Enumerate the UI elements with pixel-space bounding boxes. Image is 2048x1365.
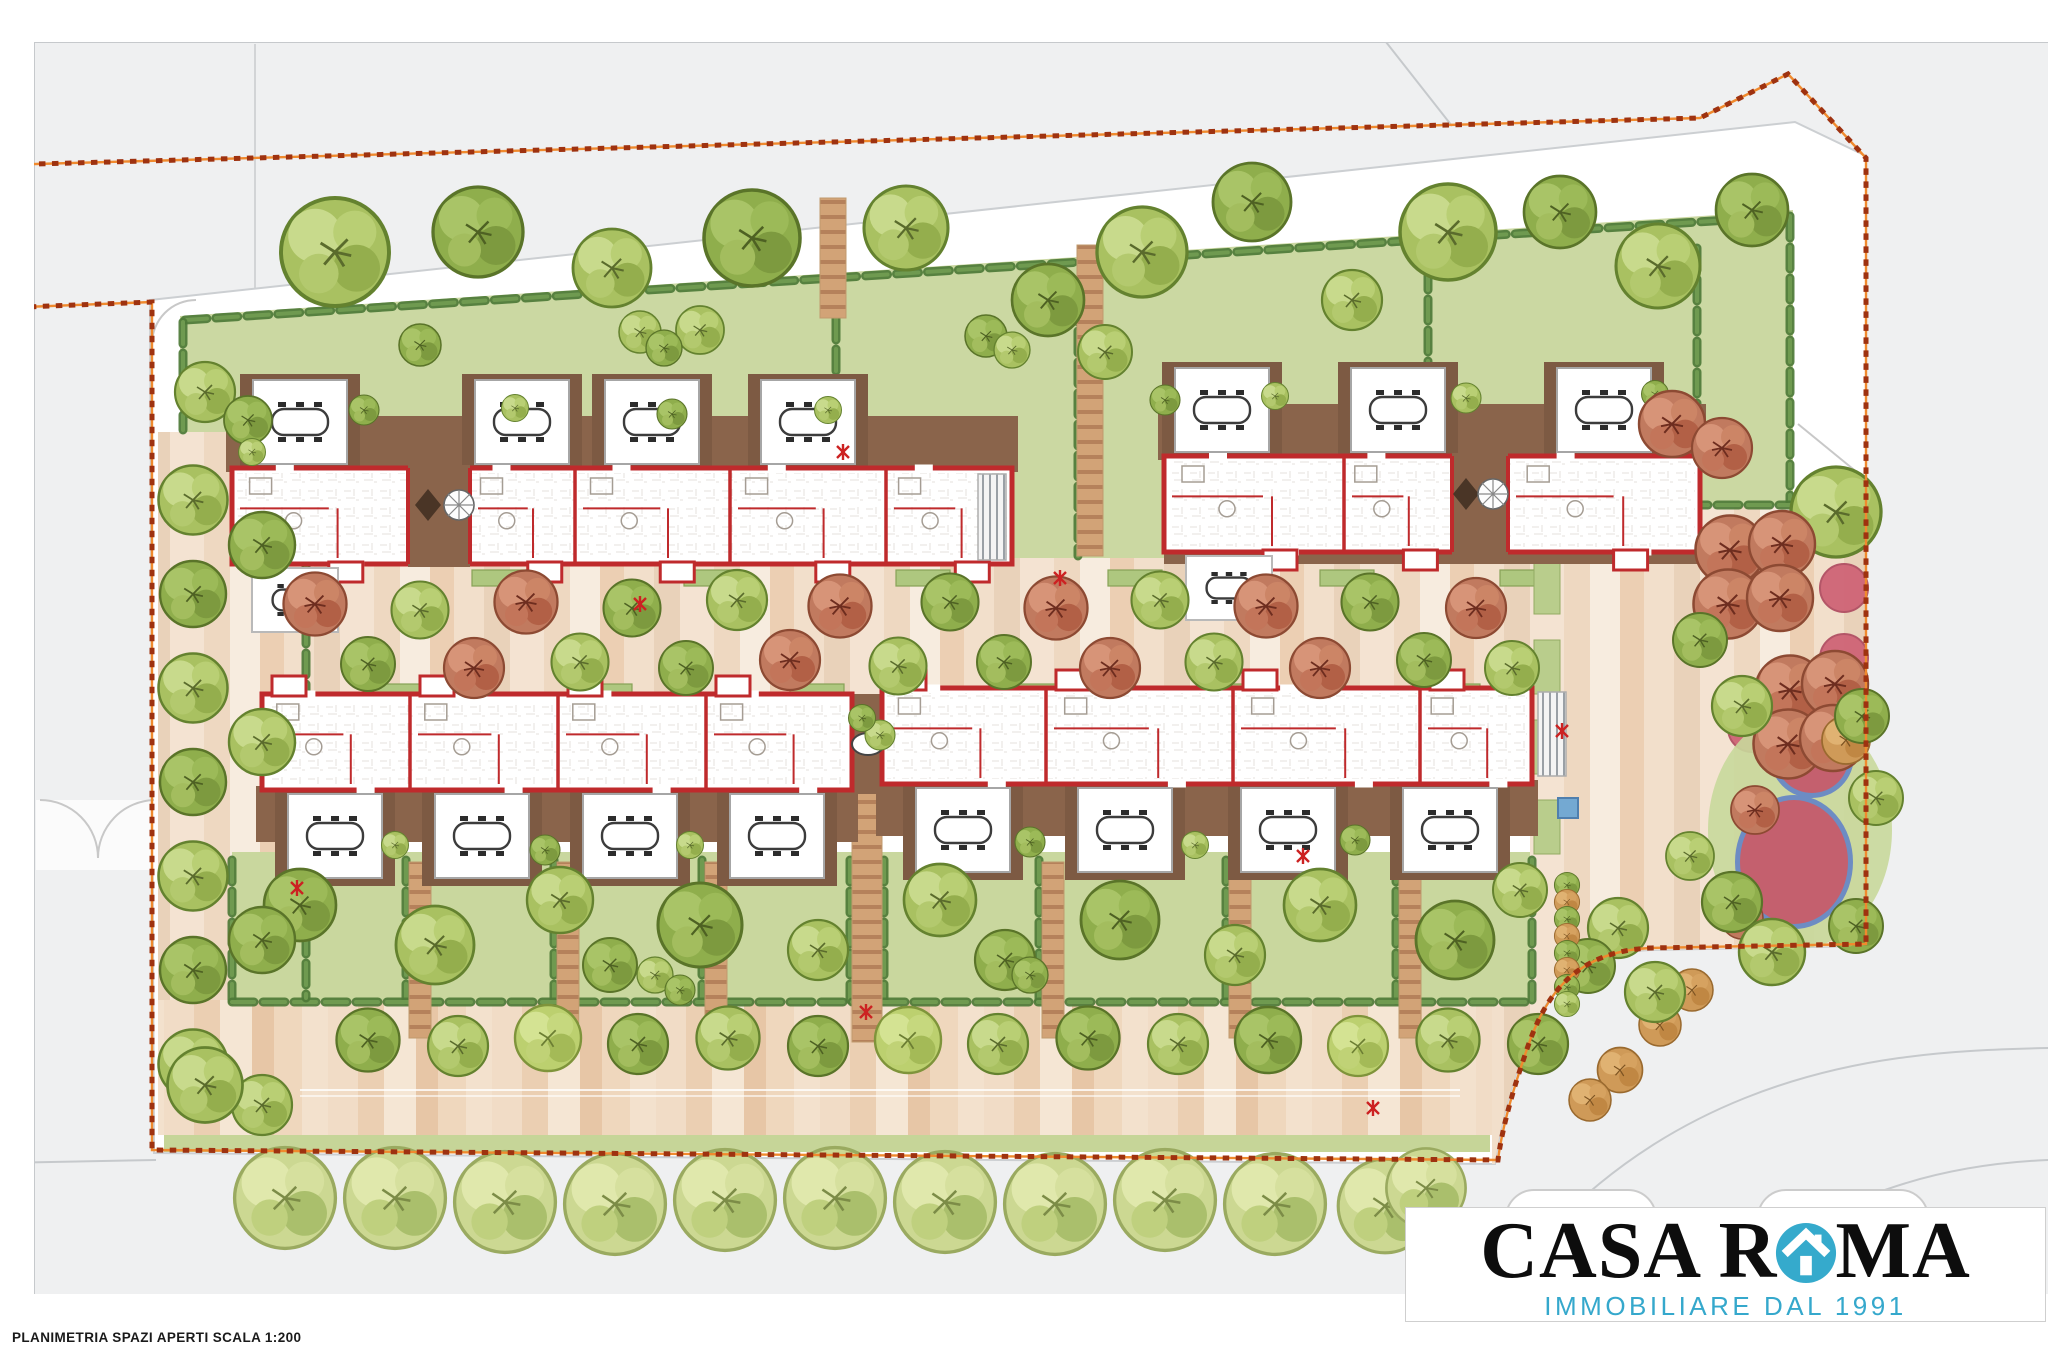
tree — [604, 580, 661, 637]
tree — [676, 306, 724, 354]
tree — [1213, 163, 1291, 241]
tree — [677, 832, 704, 859]
tree — [1400, 184, 1496, 280]
tree-group-cypress-row — [1554, 872, 1579, 1016]
tree — [1451, 383, 1481, 413]
page-margin-top — [0, 0, 2048, 42]
tree — [1115, 1150, 1216, 1251]
tree — [849, 705, 876, 732]
tree — [399, 324, 441, 366]
tree — [565, 1154, 666, 1255]
tree — [864, 186, 948, 270]
tree — [646, 330, 682, 366]
tree — [392, 582, 449, 639]
tree — [1080, 638, 1140, 698]
tree — [1397, 633, 1451, 687]
tree — [1005, 1154, 1106, 1255]
tree — [785, 1148, 886, 1249]
tree — [977, 635, 1031, 689]
site-plan-page: PLANIMETRIA SPAZI APERTI SCALA 1:200 CAS… — [0, 0, 2048, 1365]
tree — [1731, 786, 1779, 834]
tree — [239, 439, 266, 466]
tree — [809, 575, 872, 638]
tree — [1625, 962, 1685, 1022]
agency-logo-box: CASA RMA IMMOBILIARE DAL 1991 — [1405, 1207, 2046, 1322]
tree — [1182, 832, 1209, 859]
tree — [1739, 919, 1805, 985]
tree — [502, 395, 529, 422]
tree — [1849, 771, 1903, 825]
logo-tagline: IMMOBILIARE DAL 1991 — [1480, 1293, 1970, 1319]
logo-text-part1: CASA R — [1480, 1211, 1777, 1291]
tree — [552, 634, 609, 691]
tree — [1132, 572, 1189, 629]
tree — [1446, 578, 1506, 638]
tree — [583, 938, 637, 992]
tree — [1702, 872, 1762, 932]
tree — [608, 1014, 668, 1074]
tree — [444, 638, 504, 698]
logo-wordmark: CASA RMA — [1480, 1211, 1970, 1291]
tree — [1417, 1009, 1480, 1072]
tree — [1328, 1016, 1388, 1076]
tree — [659, 641, 713, 695]
tree — [530, 835, 560, 865]
tree — [281, 198, 389, 306]
tree — [1148, 1014, 1208, 1074]
tree — [1057, 1007, 1120, 1070]
tree — [159, 466, 228, 535]
tree — [1673, 613, 1727, 667]
tree — [1692, 418, 1752, 478]
tree — [229, 709, 295, 775]
tree — [229, 907, 295, 973]
tree — [160, 937, 226, 1003]
tree — [495, 571, 558, 634]
tree — [704, 190, 800, 286]
tree — [697, 1007, 760, 1070]
tree — [1416, 901, 1494, 979]
tree — [1342, 574, 1399, 631]
tree — [1235, 1007, 1301, 1073]
tree — [870, 638, 927, 695]
tree — [1493, 863, 1547, 917]
tree — [1235, 575, 1298, 638]
tree — [1716, 174, 1788, 246]
tree — [1569, 1079, 1611, 1121]
tree — [815, 397, 842, 424]
tree — [1150, 385, 1180, 415]
tree — [1012, 264, 1084, 336]
tree — [1485, 641, 1539, 695]
tree — [875, 1007, 941, 1073]
tree — [1262, 383, 1289, 410]
tree — [1025, 577, 1088, 640]
tree — [1078, 325, 1132, 379]
tree — [788, 1016, 848, 1076]
tree — [1322, 270, 1382, 330]
agency-logo: CASA RMA IMMOBILIARE DAL 1991 — [1480, 1211, 1970, 1319]
tree — [1747, 565, 1813, 631]
tree — [1284, 869, 1356, 941]
plan-caption: PLANIMETRIA SPAZI APERTI SCALA 1:200 — [12, 1330, 301, 1345]
tree — [1340, 825, 1370, 855]
tree — [675, 1150, 776, 1251]
tree — [1616, 224, 1700, 308]
house-in-circle-icon — [1774, 1219, 1838, 1287]
tree — [455, 1152, 556, 1253]
tree — [168, 1048, 243, 1123]
tree — [895, 1152, 996, 1253]
tree — [160, 749, 226, 815]
tree — [1666, 832, 1714, 880]
page-margin-left — [0, 42, 34, 1294]
tree — [159, 654, 228, 723]
site-plan-canvas — [0, 0, 2048, 1365]
tree — [573, 229, 651, 307]
tree — [428, 1016, 488, 1076]
tree — [1225, 1154, 1326, 1255]
tree — [658, 883, 742, 967]
tree — [1012, 957, 1048, 993]
tree — [160, 561, 226, 627]
tree — [349, 395, 379, 425]
tree — [665, 975, 695, 1005]
tree — [1205, 925, 1265, 985]
tree — [1524, 176, 1596, 248]
tree — [788, 920, 848, 980]
tree — [396, 906, 474, 984]
tree — [707, 570, 767, 630]
tree — [1835, 689, 1889, 743]
tree — [527, 867, 593, 933]
tree-group-street-row — [235, 1148, 1466, 1255]
tree — [904, 864, 976, 936]
tree — [1290, 638, 1350, 698]
tree — [382, 832, 409, 859]
tree — [1081, 881, 1159, 959]
tree — [760, 630, 820, 690]
tree — [345, 1148, 446, 1249]
logo-text-part2: MA — [1835, 1211, 1970, 1291]
tree — [1015, 827, 1045, 857]
tree — [433, 187, 523, 277]
tree — [1712, 676, 1772, 736]
tree — [968, 1014, 1028, 1074]
tree — [1097, 207, 1187, 297]
tree — [515, 1005, 581, 1071]
tree — [224, 396, 272, 444]
tree — [994, 332, 1030, 368]
tree — [1186, 634, 1243, 691]
tree — [284, 573, 347, 636]
tree — [341, 637, 395, 691]
tree — [229, 512, 295, 578]
tree — [922, 574, 979, 631]
tree — [657, 399, 687, 429]
tree — [337, 1009, 400, 1072]
tree — [1554, 991, 1579, 1016]
tree — [235, 1148, 336, 1249]
tree — [159, 842, 228, 911]
